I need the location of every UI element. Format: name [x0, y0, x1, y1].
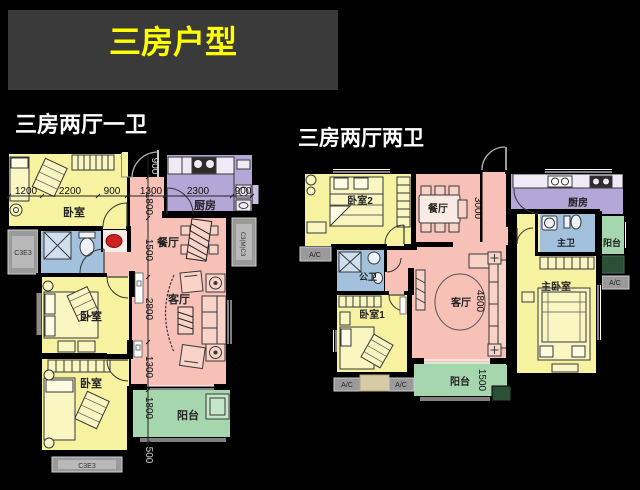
svg-text:三房户型: 三房户型	[109, 24, 237, 60]
svg-text:A/C: A/C	[341, 382, 353, 389]
svg-text:A/C: A/C	[395, 382, 407, 389]
svg-text:阳台: 阳台	[450, 375, 470, 388]
svg-text:2300: 2300	[187, 186, 210, 197]
svg-text:2800: 2800	[143, 298, 154, 321]
svg-text:2200: 2200	[59, 186, 82, 197]
svg-text:C3E3: C3E3	[78, 463, 96, 470]
svg-text:餐厅: 餐厅	[156, 235, 179, 249]
svg-text:客厅: 客厅	[167, 292, 190, 306]
svg-text:3000: 3000	[472, 197, 483, 220]
svg-text:阳台: 阳台	[177, 408, 199, 422]
svg-text:卧室: 卧室	[80, 376, 102, 390]
svg-text:900: 900	[235, 186, 252, 197]
svg-text:卧室: 卧室	[80, 309, 102, 323]
svg-text:卧室2: 卧室2	[347, 194, 373, 207]
svg-text:三房两厅两卫: 三房两厅两卫	[298, 126, 424, 150]
svg-text:A/C: A/C	[309, 252, 321, 259]
svg-text:1500: 1500	[476, 369, 487, 392]
svg-text:900: 900	[104, 186, 121, 197]
svg-text:C3E3: C3E3	[14, 250, 32, 257]
svg-text:公卫: 公卫	[359, 272, 377, 282]
svg-text:三房两厅一卫: 三房两厅一卫	[15, 112, 147, 137]
svg-text:500: 500	[143, 447, 154, 464]
svg-text:4800: 4800	[474, 290, 485, 313]
svg-text:1300: 1300	[143, 356, 154, 379]
svg-text:客厅: 客厅	[450, 296, 471, 309]
svg-text:1200: 1200	[15, 186, 38, 197]
svg-text:C3(M)C3: C3(M)C3	[239, 232, 245, 257]
svg-text:900: 900	[149, 158, 160, 175]
svg-text:主卧室: 主卧室	[541, 280, 571, 293]
svg-text:阳台: 阳台	[603, 237, 621, 248]
svg-text:1800: 1800	[143, 193, 154, 216]
svg-text:1500: 1500	[143, 239, 154, 262]
svg-text:主卫: 主卫	[557, 237, 575, 248]
svg-text:厨房: 厨房	[568, 196, 588, 209]
svg-text:厨房: 厨房	[194, 198, 216, 212]
svg-text:卧室: 卧室	[63, 205, 85, 219]
svg-text:A/C: A/C	[609, 280, 621, 287]
svg-text:1800: 1800	[143, 397, 154, 420]
svg-text:餐厅: 餐厅	[427, 202, 448, 215]
svg-text:卧室1: 卧室1	[359, 308, 385, 321]
